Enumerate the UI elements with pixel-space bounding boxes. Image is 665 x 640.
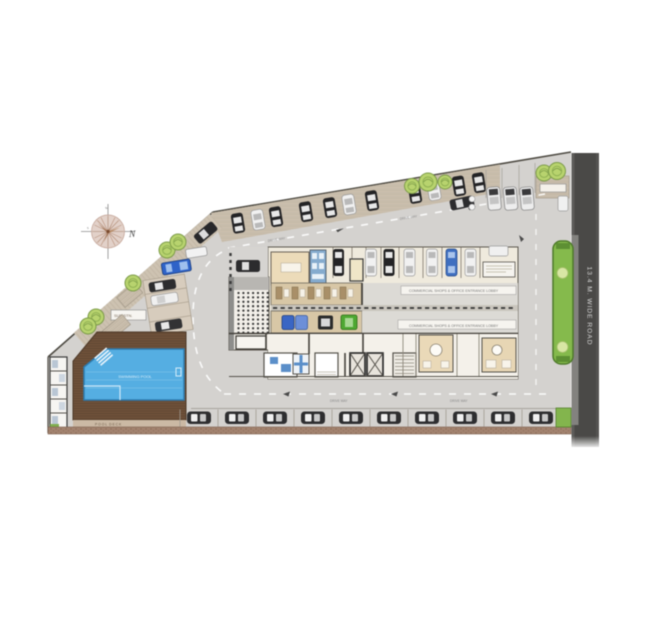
svg-text:s: s [87, 225, 89, 230]
svg-text:COMMERCIAL SHOPS & OFFICE ENTR: COMMERCIAL SHOPS & OFFICE ENTRANCE LOBBY [409, 289, 499, 293]
svg-text:P O O L D E C K: P O O L D E C K [95, 423, 122, 427]
svg-text:DRIVE WAY: DRIVE WAY [450, 399, 468, 403]
svg-text:COMMERCIAL SHOPS & OFFICE ENTR: COMMERCIAL SHOPS & OFFICE ENTRANCE LOBBY [409, 324, 499, 328]
svg-text:N: N [128, 230, 136, 240]
svg-text:13.4 M. WIDE ROAD: 13.4 M. WIDE ROAD [586, 267, 593, 346]
svg-text:DRIVE WAY: DRIVE WAY [330, 399, 348, 403]
svg-text:SWIMMING POOL: SWIMMING POOL [118, 374, 152, 379]
